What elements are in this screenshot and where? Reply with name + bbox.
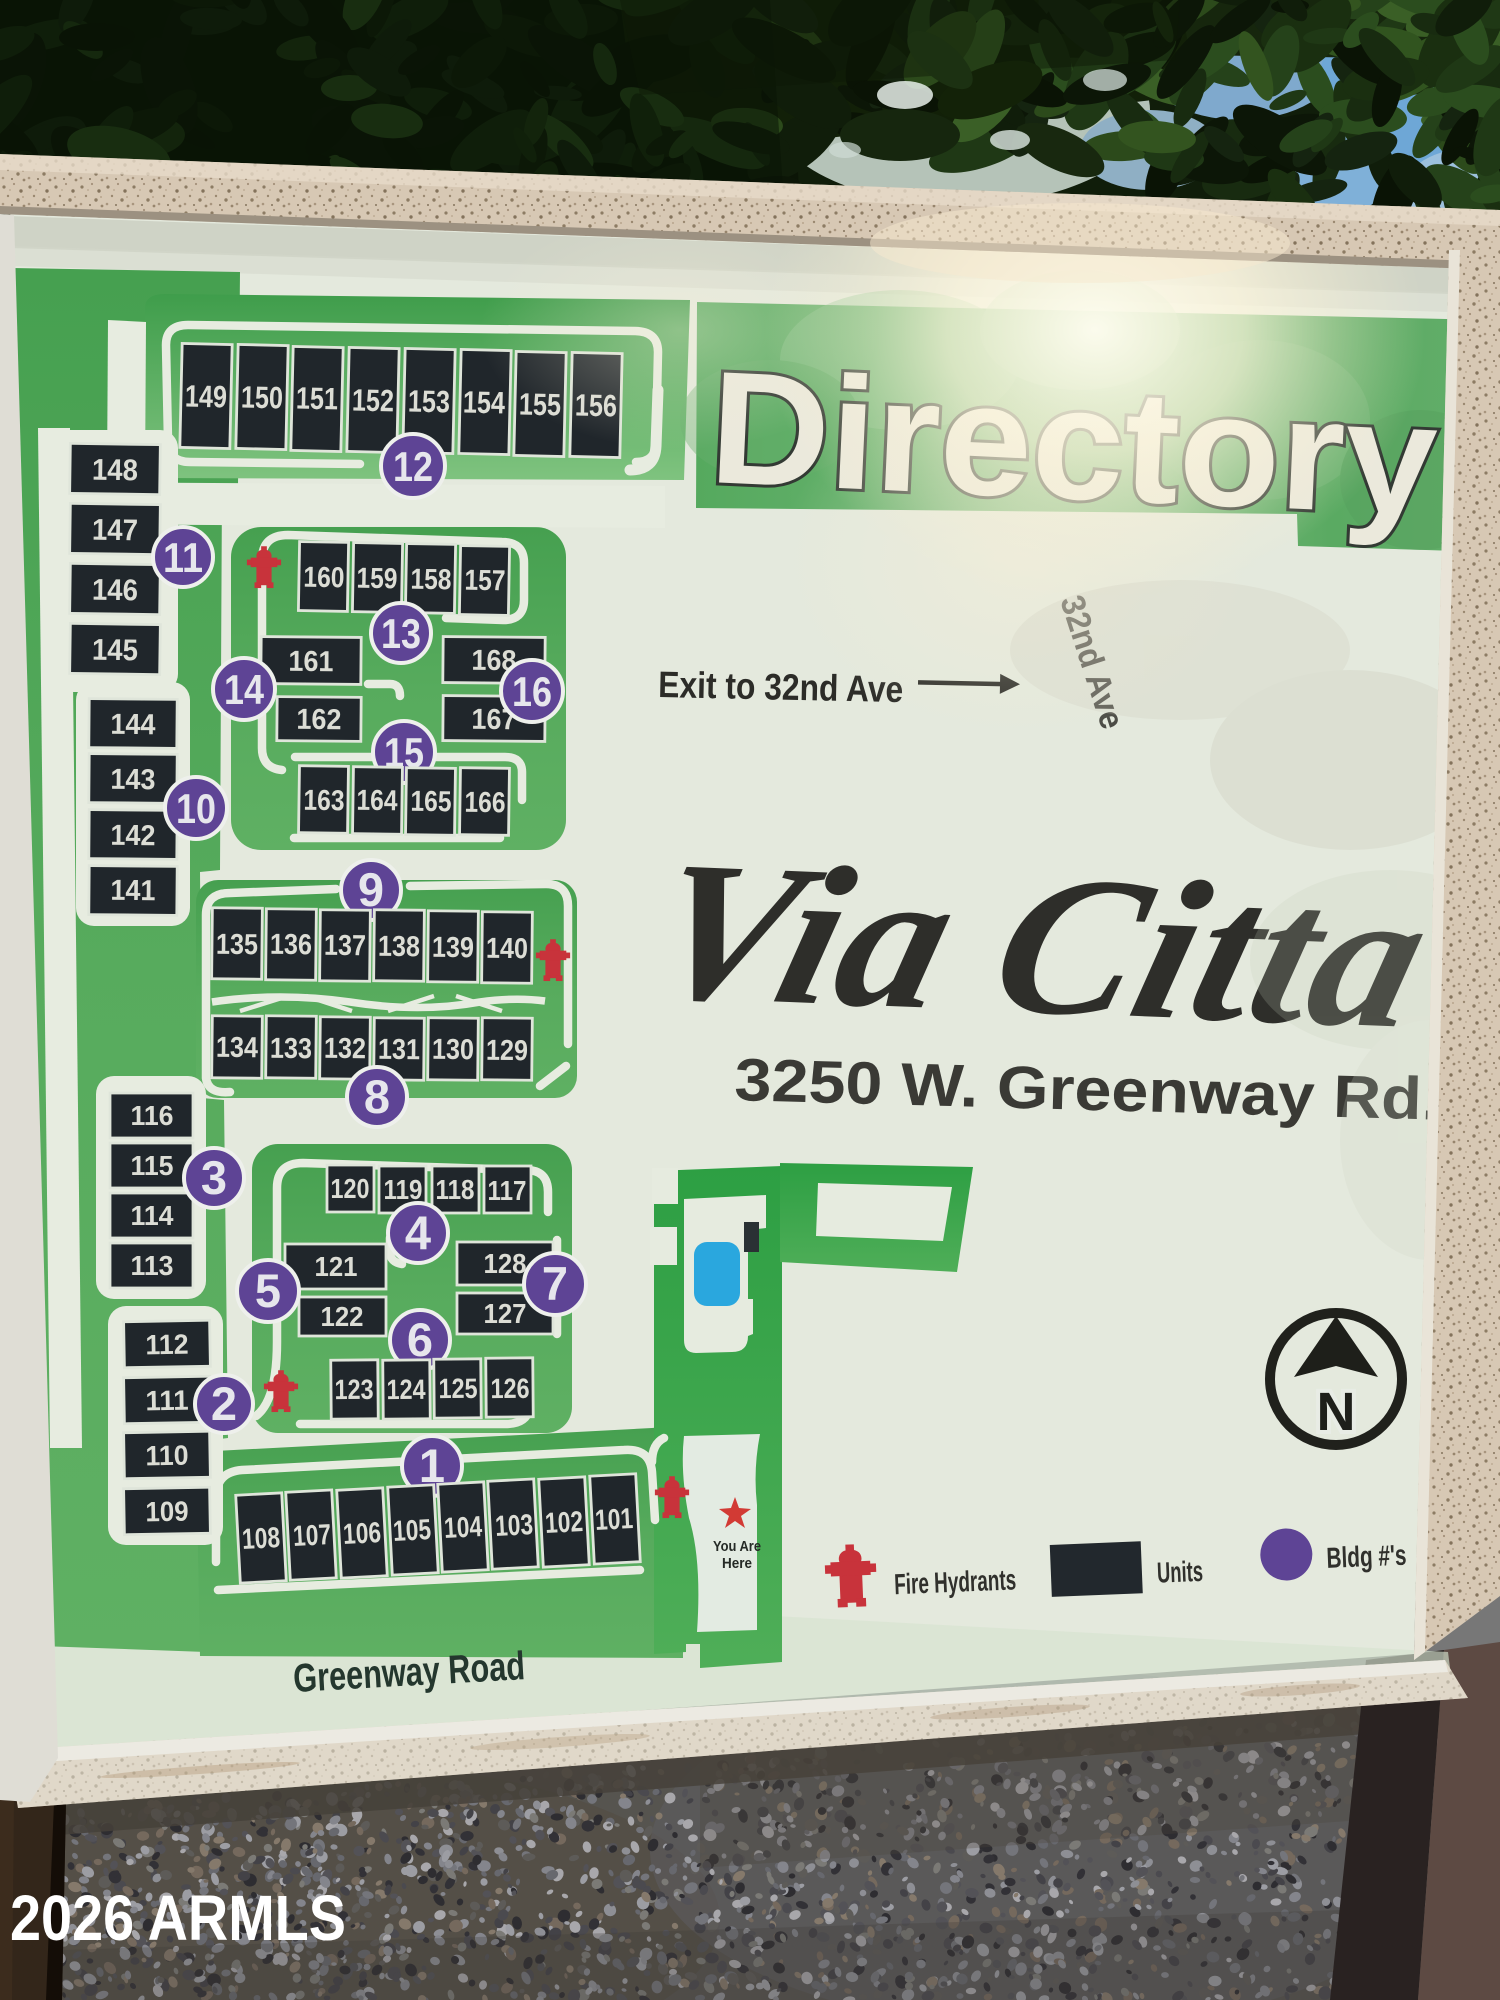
svg-text:141: 141 [110, 875, 155, 907]
svg-text:129: 129 [486, 1035, 528, 1067]
svg-text:109: 109 [145, 1496, 189, 1528]
svg-text:106: 106 [342, 1517, 382, 1551]
svg-text:You Are: You Are [713, 1538, 761, 1555]
svg-text:160: 160 [303, 562, 345, 595]
svg-text:101: 101 [594, 1503, 634, 1537]
svg-text:154: 154 [463, 385, 506, 421]
svg-text:127: 127 [484, 1298, 527, 1329]
svg-text:144: 144 [110, 709, 155, 741]
svg-text:162: 162 [296, 704, 341, 736]
svg-text:150: 150 [241, 380, 284, 416]
svg-text:125: 125 [438, 1373, 477, 1404]
svg-text:105: 105 [392, 1514, 432, 1548]
svg-text:122: 122 [321, 1301, 364, 1332]
svg-text:157: 157 [464, 565, 506, 598]
svg-text:119: 119 [384, 1174, 423, 1205]
svg-text:Bldg #'s: Bldg #'s [1326, 1540, 1407, 1575]
svg-text:14: 14 [224, 666, 265, 713]
svg-text:158: 158 [410, 564, 452, 597]
svg-text:159: 159 [356, 563, 398, 596]
svg-text:165: 165 [410, 786, 451, 819]
svg-text:9: 9 [358, 863, 384, 916]
svg-text:117: 117 [488, 1175, 527, 1206]
svg-text:123: 123 [334, 1374, 373, 1405]
svg-text:108: 108 [241, 1522, 281, 1556]
svg-text:148: 148 [92, 454, 138, 488]
svg-text:164: 164 [356, 785, 397, 818]
svg-text:166: 166 [464, 787, 505, 820]
svg-text:104: 104 [443, 1511, 483, 1545]
svg-text:147: 147 [92, 514, 138, 548]
svg-text:111: 111 [145, 1385, 189, 1417]
svg-text:2026 ARMLS: 2026 ARMLS [10, 1882, 346, 1954]
svg-text:135: 135 [216, 929, 258, 961]
svg-text:146: 146 [92, 574, 138, 608]
svg-text:151: 151 [296, 381, 339, 417]
svg-text:140: 140 [486, 933, 528, 965]
svg-text:153: 153 [408, 384, 451, 420]
svg-text:13: 13 [381, 610, 421, 657]
svg-text:145: 145 [92, 634, 138, 668]
svg-text:11: 11 [163, 534, 203, 581]
svg-text:163: 163 [303, 785, 344, 818]
svg-text:118: 118 [436, 1174, 475, 1205]
svg-text:103: 103 [494, 1509, 534, 1543]
svg-text:16: 16 [512, 668, 552, 715]
svg-text:121: 121 [315, 1251, 358, 1282]
svg-text:10: 10 [176, 785, 216, 832]
svg-text:114: 114 [131, 1200, 174, 1231]
svg-text:8: 8 [364, 1070, 390, 1123]
svg-text:112: 112 [145, 1329, 189, 1361]
svg-text:7: 7 [542, 1257, 568, 1310]
svg-text:5: 5 [255, 1264, 281, 1317]
svg-text:139: 139 [432, 932, 474, 964]
svg-text:2: 2 [211, 1377, 237, 1430]
svg-text:107: 107 [292, 1519, 332, 1553]
svg-text:134: 134 [216, 1032, 258, 1064]
svg-text:142: 142 [110, 820, 155, 852]
svg-text:130: 130 [432, 1034, 474, 1066]
svg-text:128: 128 [484, 1248, 527, 1279]
svg-text:124: 124 [386, 1374, 426, 1405]
svg-text:126: 126 [490, 1373, 529, 1404]
svg-text:138: 138 [378, 931, 420, 963]
svg-text:137: 137 [324, 930, 366, 962]
svg-text:120: 120 [331, 1173, 370, 1204]
svg-text:132: 132 [324, 1033, 366, 1065]
svg-text:3: 3 [201, 1151, 227, 1204]
svg-text:Units: Units [1156, 1556, 1203, 1590]
svg-text:6: 6 [407, 1313, 433, 1366]
svg-text:Here: Here [722, 1555, 752, 1572]
svg-text:12: 12 [393, 443, 433, 490]
svg-text:131: 131 [378, 1034, 420, 1066]
svg-text:113: 113 [131, 1250, 174, 1281]
svg-text:110: 110 [145, 1440, 189, 1472]
svg-text:102: 102 [544, 1506, 584, 1540]
svg-text:115: 115 [131, 1150, 174, 1181]
svg-text:143: 143 [110, 764, 155, 796]
svg-text:152: 152 [352, 383, 395, 419]
svg-text:4: 4 [405, 1206, 431, 1259]
svg-text:Fire Hydrants: Fire Hydrants [894, 1564, 1017, 1601]
svg-text:133: 133 [270, 1033, 312, 1065]
svg-text:N: N [1317, 1382, 1356, 1442]
svg-text:149: 149 [185, 379, 228, 415]
svg-text:161: 161 [288, 646, 333, 678]
svg-text:116: 116 [131, 1100, 174, 1131]
svg-text:136: 136 [270, 929, 312, 961]
